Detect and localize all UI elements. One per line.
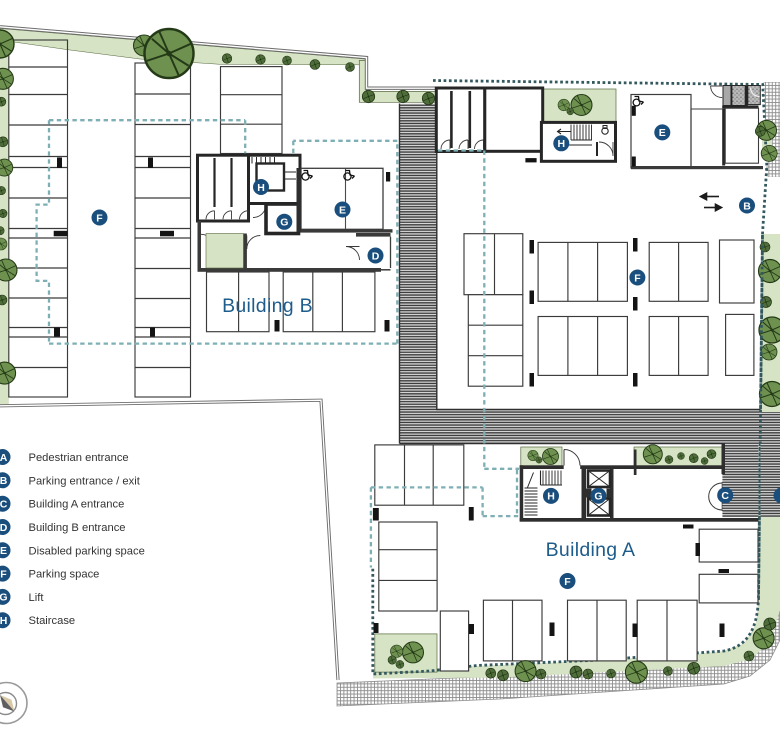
svg-text:Building B: Building B bbox=[222, 295, 313, 317]
svg-text:H: H bbox=[257, 182, 265, 194]
svg-text:Parking space: Parking space bbox=[29, 569, 100, 581]
svg-text:B: B bbox=[0, 475, 8, 487]
svg-text:H: H bbox=[558, 138, 566, 150]
svg-text:F: F bbox=[634, 272, 641, 284]
svg-text:G: G bbox=[0, 592, 8, 604]
svg-text:H: H bbox=[0, 615, 7, 627]
svg-text:F: F bbox=[96, 212, 103, 224]
svg-text:F: F bbox=[564, 576, 571, 588]
svg-text:B: B bbox=[743, 200, 751, 212]
svg-text:G: G bbox=[594, 491, 602, 503]
svg-text:Parking entrance / exit: Parking entrance / exit bbox=[29, 475, 141, 487]
svg-text:E: E bbox=[0, 545, 7, 557]
svg-text:Building B entrance: Building B entrance bbox=[29, 522, 126, 534]
svg-text:Disabled parking space: Disabled parking space bbox=[29, 545, 145, 557]
svg-text:Pedestrian entrance: Pedestrian entrance bbox=[29, 452, 129, 464]
svg-text:Lift: Lift bbox=[29, 592, 45, 604]
svg-text:H: H bbox=[547, 491, 555, 503]
svg-text:G: G bbox=[280, 217, 288, 229]
svg-text:E: E bbox=[339, 204, 346, 216]
svg-text:F: F bbox=[0, 568, 7, 580]
svg-text:C: C bbox=[0, 499, 8, 511]
svg-text:D: D bbox=[372, 250, 380, 262]
svg-text:E: E bbox=[659, 127, 666, 139]
svg-text:Staircase: Staircase bbox=[29, 615, 76, 627]
svg-text:D: D bbox=[0, 522, 8, 534]
svg-text:C: C bbox=[721, 490, 729, 502]
svg-text:A: A bbox=[0, 452, 8, 464]
svg-text:Building A entrance: Building A entrance bbox=[29, 499, 125, 511]
svg-text:Building A: Building A bbox=[546, 539, 636, 561]
